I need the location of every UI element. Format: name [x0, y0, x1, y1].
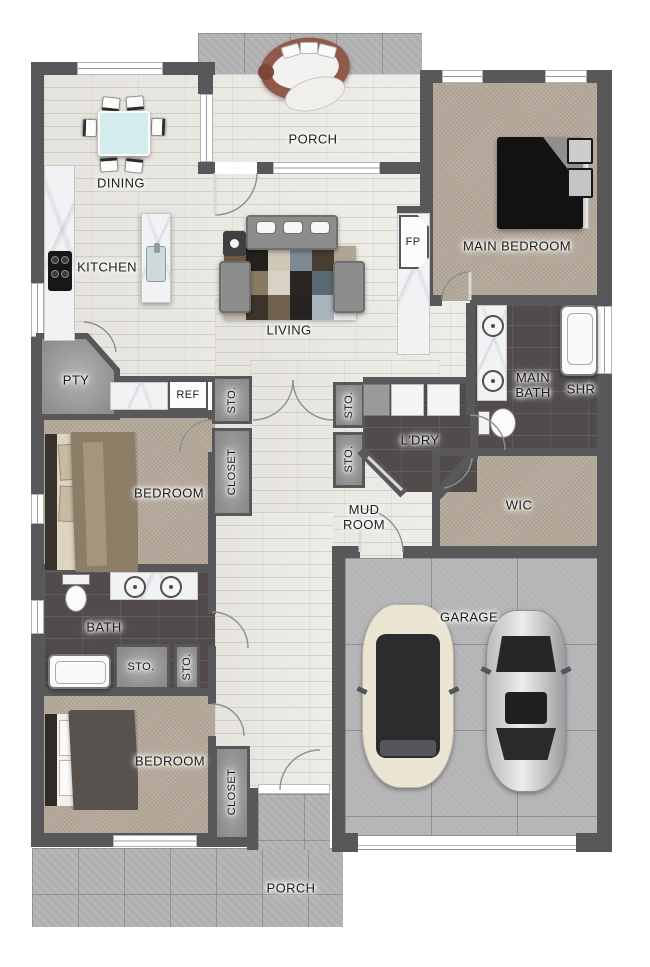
wall: [257, 162, 273, 174]
dining-table: [98, 111, 150, 156]
laundry-counter: [363, 384, 390, 416]
label-closet: CLOSET: [226, 449, 238, 495]
car-rear-glass: [496, 728, 556, 760]
bed-throw: [83, 442, 107, 567]
window: [31, 494, 44, 524]
wall: [432, 448, 612, 456]
label-storage: STO.: [343, 445, 355, 472]
toilet: [478, 408, 518, 438]
wall: [363, 377, 477, 384]
floor-plan: PORCH DINING KITCHEN LIVING FP MAIN BEDR…: [0, 0, 650, 967]
wall: [470, 415, 478, 459]
dining-chair: [83, 119, 98, 137]
label-fireplace: FP: [406, 236, 421, 248]
bed-bottom: [45, 710, 138, 810]
washer: [391, 384, 424, 416]
room-label-bath: BATH: [86, 620, 121, 635]
room-label-main-bedroom: MAIN BEDROOM: [463, 239, 571, 254]
dryer: [427, 384, 460, 416]
room-label-laundry: L'DRY: [401, 433, 440, 448]
toilet-tank: [62, 574, 90, 585]
label-storage: STO.: [343, 391, 355, 418]
dining-chair: [151, 118, 166, 136]
sink: [124, 576, 146, 598]
room-label-kitchen: KITCHEN: [77, 260, 137, 275]
bathtub-basin: [567, 313, 593, 365]
main-bath-line1: MAIN: [515, 370, 550, 385]
mud-line1: MUD: [343, 502, 385, 517]
bed-blanket: [68, 710, 138, 810]
sink: [482, 315, 504, 337]
toilet-tank: [478, 411, 490, 435]
car-silver: [486, 610, 566, 792]
room-label-shower: SHR: [567, 382, 596, 397]
room-label-garage: GARAGE: [440, 610, 498, 625]
room-label-living: LIVING: [266, 323, 311, 338]
rug-patch: [312, 295, 334, 320]
dining-chair: [124, 158, 143, 174]
mud-line2: ROOM: [343, 517, 385, 532]
wall: [432, 455, 440, 550]
room-label-porch-top: PORCH: [289, 132, 338, 147]
rug-patch: [290, 271, 312, 296]
wall: [466, 303, 475, 415]
bench-knob: [258, 64, 274, 80]
bed-headboard: [45, 714, 57, 806]
label-storage: STO.: [181, 653, 193, 680]
label-storage: STO.: [226, 386, 238, 413]
window: [200, 94, 213, 162]
sofa-cushion: [283, 221, 303, 234]
room-label-bedroom-bottom: BEDROOM: [135, 754, 205, 769]
burner-icon: [61, 256, 69, 264]
rug-patch: [312, 271, 334, 296]
sofa: [246, 215, 338, 250]
island-sink: [146, 246, 166, 282]
room-label-main-bath: MAIN BATH: [515, 370, 550, 400]
window: [31, 600, 44, 634]
wall: [597, 70, 612, 852]
dining-chair: [101, 96, 120, 112]
window: [442, 70, 483, 83]
lamp-icon: [230, 239, 239, 248]
sink: [160, 576, 182, 598]
burner-icon: [51, 256, 59, 264]
window: [545, 70, 587, 83]
car-windshield: [496, 636, 556, 672]
floor-rear-walkway: [258, 794, 330, 850]
toilet-bowl: [490, 408, 516, 438]
sofa-cushion: [256, 221, 276, 234]
dining-chair: [125, 95, 144, 111]
room-label-wic: WIC: [506, 498, 532, 513]
burner-icon: [61, 270, 69, 278]
bathtub: [48, 654, 111, 689]
car-windshield: [380, 740, 436, 756]
kitchen-counter-bottom: [110, 382, 168, 410]
wall: [430, 295, 442, 306]
room-label-mud-room: MUD ROOM: [343, 502, 385, 532]
room-label-porch-bottom: PORCH: [267, 881, 316, 896]
toilet: [62, 574, 90, 614]
wall: [198, 162, 215, 174]
wall: [332, 546, 345, 838]
bathtub-basin: [55, 661, 106, 684]
rug-patch: [268, 295, 290, 320]
bench-cushion: [300, 42, 318, 54]
window: [77, 62, 163, 75]
wall: [380, 162, 422, 174]
window: [113, 835, 197, 847]
main-bed: [497, 133, 595, 232]
label-storage: STO.: [127, 661, 154, 673]
armchair: [219, 261, 251, 313]
bed-pillow: [567, 138, 593, 164]
wall: [576, 833, 612, 852]
rear-door-opening: [258, 784, 330, 794]
room-label-pantry: PTY: [63, 373, 89, 388]
window: [273, 162, 380, 174]
bed-pillow: [567, 168, 593, 198]
toilet-bowl: [65, 585, 87, 612]
side-table-lamp: [223, 231, 246, 256]
faucet-icon: [154, 243, 160, 253]
label-fridge: REF: [176, 389, 199, 401]
room-label-bedroom-mid: BEDROOM: [134, 486, 204, 501]
car-sunroof: [505, 692, 547, 724]
armchair: [333, 261, 365, 313]
rug-patch: [290, 295, 312, 320]
wall: [31, 62, 44, 847]
front-door-opening: [215, 162, 257, 174]
window: [31, 283, 44, 337]
burner-icon: [51, 270, 59, 278]
car-cream: [362, 604, 454, 788]
label-closet: CLOSET: [226, 769, 238, 815]
wall: [332, 546, 360, 558]
bathtub: [560, 305, 598, 376]
garage-door: [358, 835, 576, 850]
cooktop: [48, 251, 72, 291]
main-bath-line2: BATH: [515, 385, 550, 400]
rug-patch: [268, 271, 290, 296]
wall: [208, 564, 216, 614]
sofa-cushion: [310, 221, 330, 234]
wall: [208, 694, 216, 704]
wall: [198, 64, 213, 94]
dining-chair: [100, 157, 119, 172]
sink: [482, 370, 504, 392]
window: [597, 306, 612, 374]
bed-mid: [45, 432, 138, 572]
bed-headboard: [45, 434, 57, 570]
wall: [332, 833, 358, 852]
room-label-dining: DINING: [97, 176, 145, 191]
porch-bench: [258, 36, 356, 110]
